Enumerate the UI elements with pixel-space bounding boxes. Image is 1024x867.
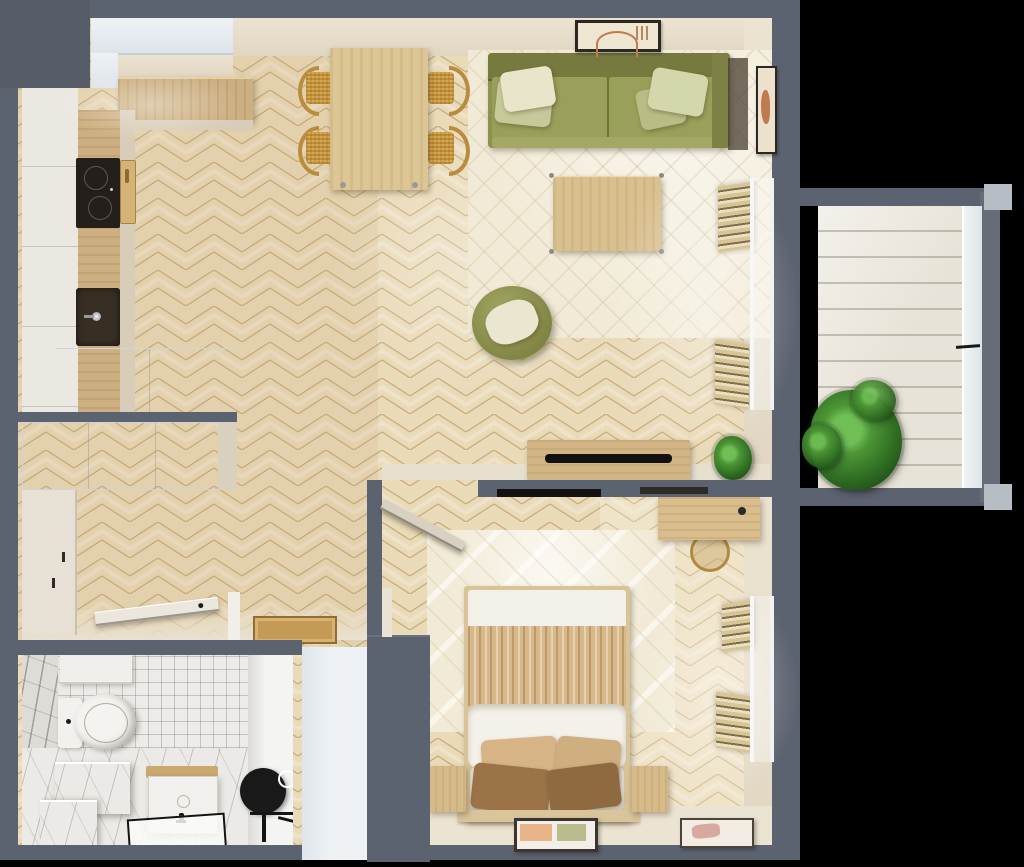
balcony-outer-edge [980, 192, 1000, 502]
bathroom-white-wall [248, 655, 293, 845]
kitchen-base-cabinets-bottom [56, 348, 237, 413]
nightstand-right [630, 766, 668, 812]
hob-controls-dot [110, 188, 113, 191]
floorplan-render [0, 0, 1024, 867]
beige-ruffled-blanket [468, 626, 626, 706]
table-caster-icon [340, 182, 346, 188]
door-handle-icon [198, 603, 204, 609]
shower-tray [127, 813, 228, 845]
wall-kitchen-band [0, 412, 237, 422]
hall-built-in-cabinet [22, 422, 220, 490]
living-window-frame [750, 178, 774, 410]
kitchen-upper-cabinet-side [91, 53, 118, 88]
balcony-corner-cap [984, 184, 1012, 210]
wardrobe-handle-icon [62, 552, 65, 562]
art-arch-line [596, 31, 638, 57]
frame-art-pink [691, 823, 720, 840]
balcony-plant-leaves [802, 424, 842, 468]
leaning-picture-frame [514, 818, 598, 852]
bathroom-shelf [60, 655, 132, 684]
dining-table [330, 48, 428, 190]
table-leg-dot [549, 173, 554, 178]
wall-corner-block [0, 0, 90, 88]
arch-wall-art [575, 20, 661, 52]
kitchen-counter-front-edge [133, 120, 253, 130]
tv-console [527, 440, 690, 480]
balcony-corner-cap [984, 484, 1012, 510]
hall-wall-stub [218, 412, 237, 490]
soundbar [545, 454, 672, 463]
faucet-stem [84, 315, 94, 318]
induction-hob [76, 158, 120, 228]
dining-chair [424, 66, 462, 112]
sofa-side-table [728, 58, 748, 150]
balcony [800, 184, 1012, 512]
balcony-wall-bottom [800, 488, 1008, 506]
bed-pillow-brown [546, 762, 623, 814]
chair-seat [306, 72, 332, 104]
kitchen-upper-cabinets [91, 18, 233, 55]
wall-shaft-block [367, 635, 430, 862]
side-wall-art [756, 66, 777, 154]
vanity-knob-icon [177, 795, 190, 808]
window-blind-slats-bottom [715, 340, 749, 409]
wall-niche-strip [640, 487, 708, 494]
wall-living-bedroom-left [367, 480, 382, 647]
chair-seat [428, 72, 454, 104]
entry-door-jamb [228, 592, 240, 640]
table-leg-dot [549, 249, 554, 254]
potted-plant-small [714, 436, 752, 480]
chair-seat [428, 132, 454, 164]
sofa [488, 53, 730, 148]
nightstand-left [428, 766, 466, 812]
kitchen-sink [76, 288, 120, 346]
kitchen-counter-top-run [118, 77, 253, 122]
art-stripes [636, 26, 650, 40]
art-leaf-blob [761, 90, 770, 124]
dining-chair [424, 126, 462, 172]
frame-art-peach [520, 824, 552, 841]
sofa-front-edge [492, 137, 726, 148]
kitchen-wall-face [118, 53, 233, 79]
toilet-bowl [74, 694, 136, 750]
frame-art-olive [557, 824, 586, 841]
sofa-pillow-cream [499, 65, 557, 113]
chair-seat [306, 132, 332, 164]
wall-tv-strip [497, 489, 601, 497]
balcony-wall-top [800, 188, 1008, 206]
hob-ring-icon [84, 166, 108, 190]
table-caster-icon [412, 182, 418, 188]
bed [464, 586, 630, 822]
sconce-ring-icon [278, 770, 293, 788]
bedroom-door-jamb [382, 588, 392, 637]
desk [658, 497, 760, 540]
pouf-pillow [480, 294, 543, 351]
shower-fixture-bar [250, 812, 293, 815]
hall-tall-wardrobe [22, 490, 77, 635]
cutting-board [120, 160, 136, 224]
pouf-armchair [472, 286, 552, 360]
table-leg-dot [659, 173, 664, 178]
toilet-seat-line [84, 703, 128, 743]
flush-button-icon [66, 719, 71, 724]
bedroom-blind-slats-bottom [716, 692, 750, 753]
shower-fixture-pole [262, 812, 266, 842]
bed-pillow-brown [470, 762, 552, 816]
table-leg-dot [659, 249, 664, 254]
desk-lamp-icon [738, 507, 746, 515]
window-blind-slats-top [718, 181, 754, 252]
leaning-picture-frame [680, 818, 754, 848]
balcony-plant-leaves [852, 380, 896, 420]
wall-hall-bathroom [0, 640, 302, 655]
hob-ring-icon [88, 196, 112, 220]
coffee-table [553, 176, 661, 251]
bed-foot-sheet [468, 590, 626, 628]
marble-bench-step [40, 800, 97, 845]
cutting-board-slot [125, 169, 129, 183]
bedroom-window-frame [750, 596, 774, 762]
wardrobe-handle-icon [52, 578, 55, 588]
bathroom [22, 655, 293, 845]
hall-wardrobe-column [302, 647, 367, 860]
